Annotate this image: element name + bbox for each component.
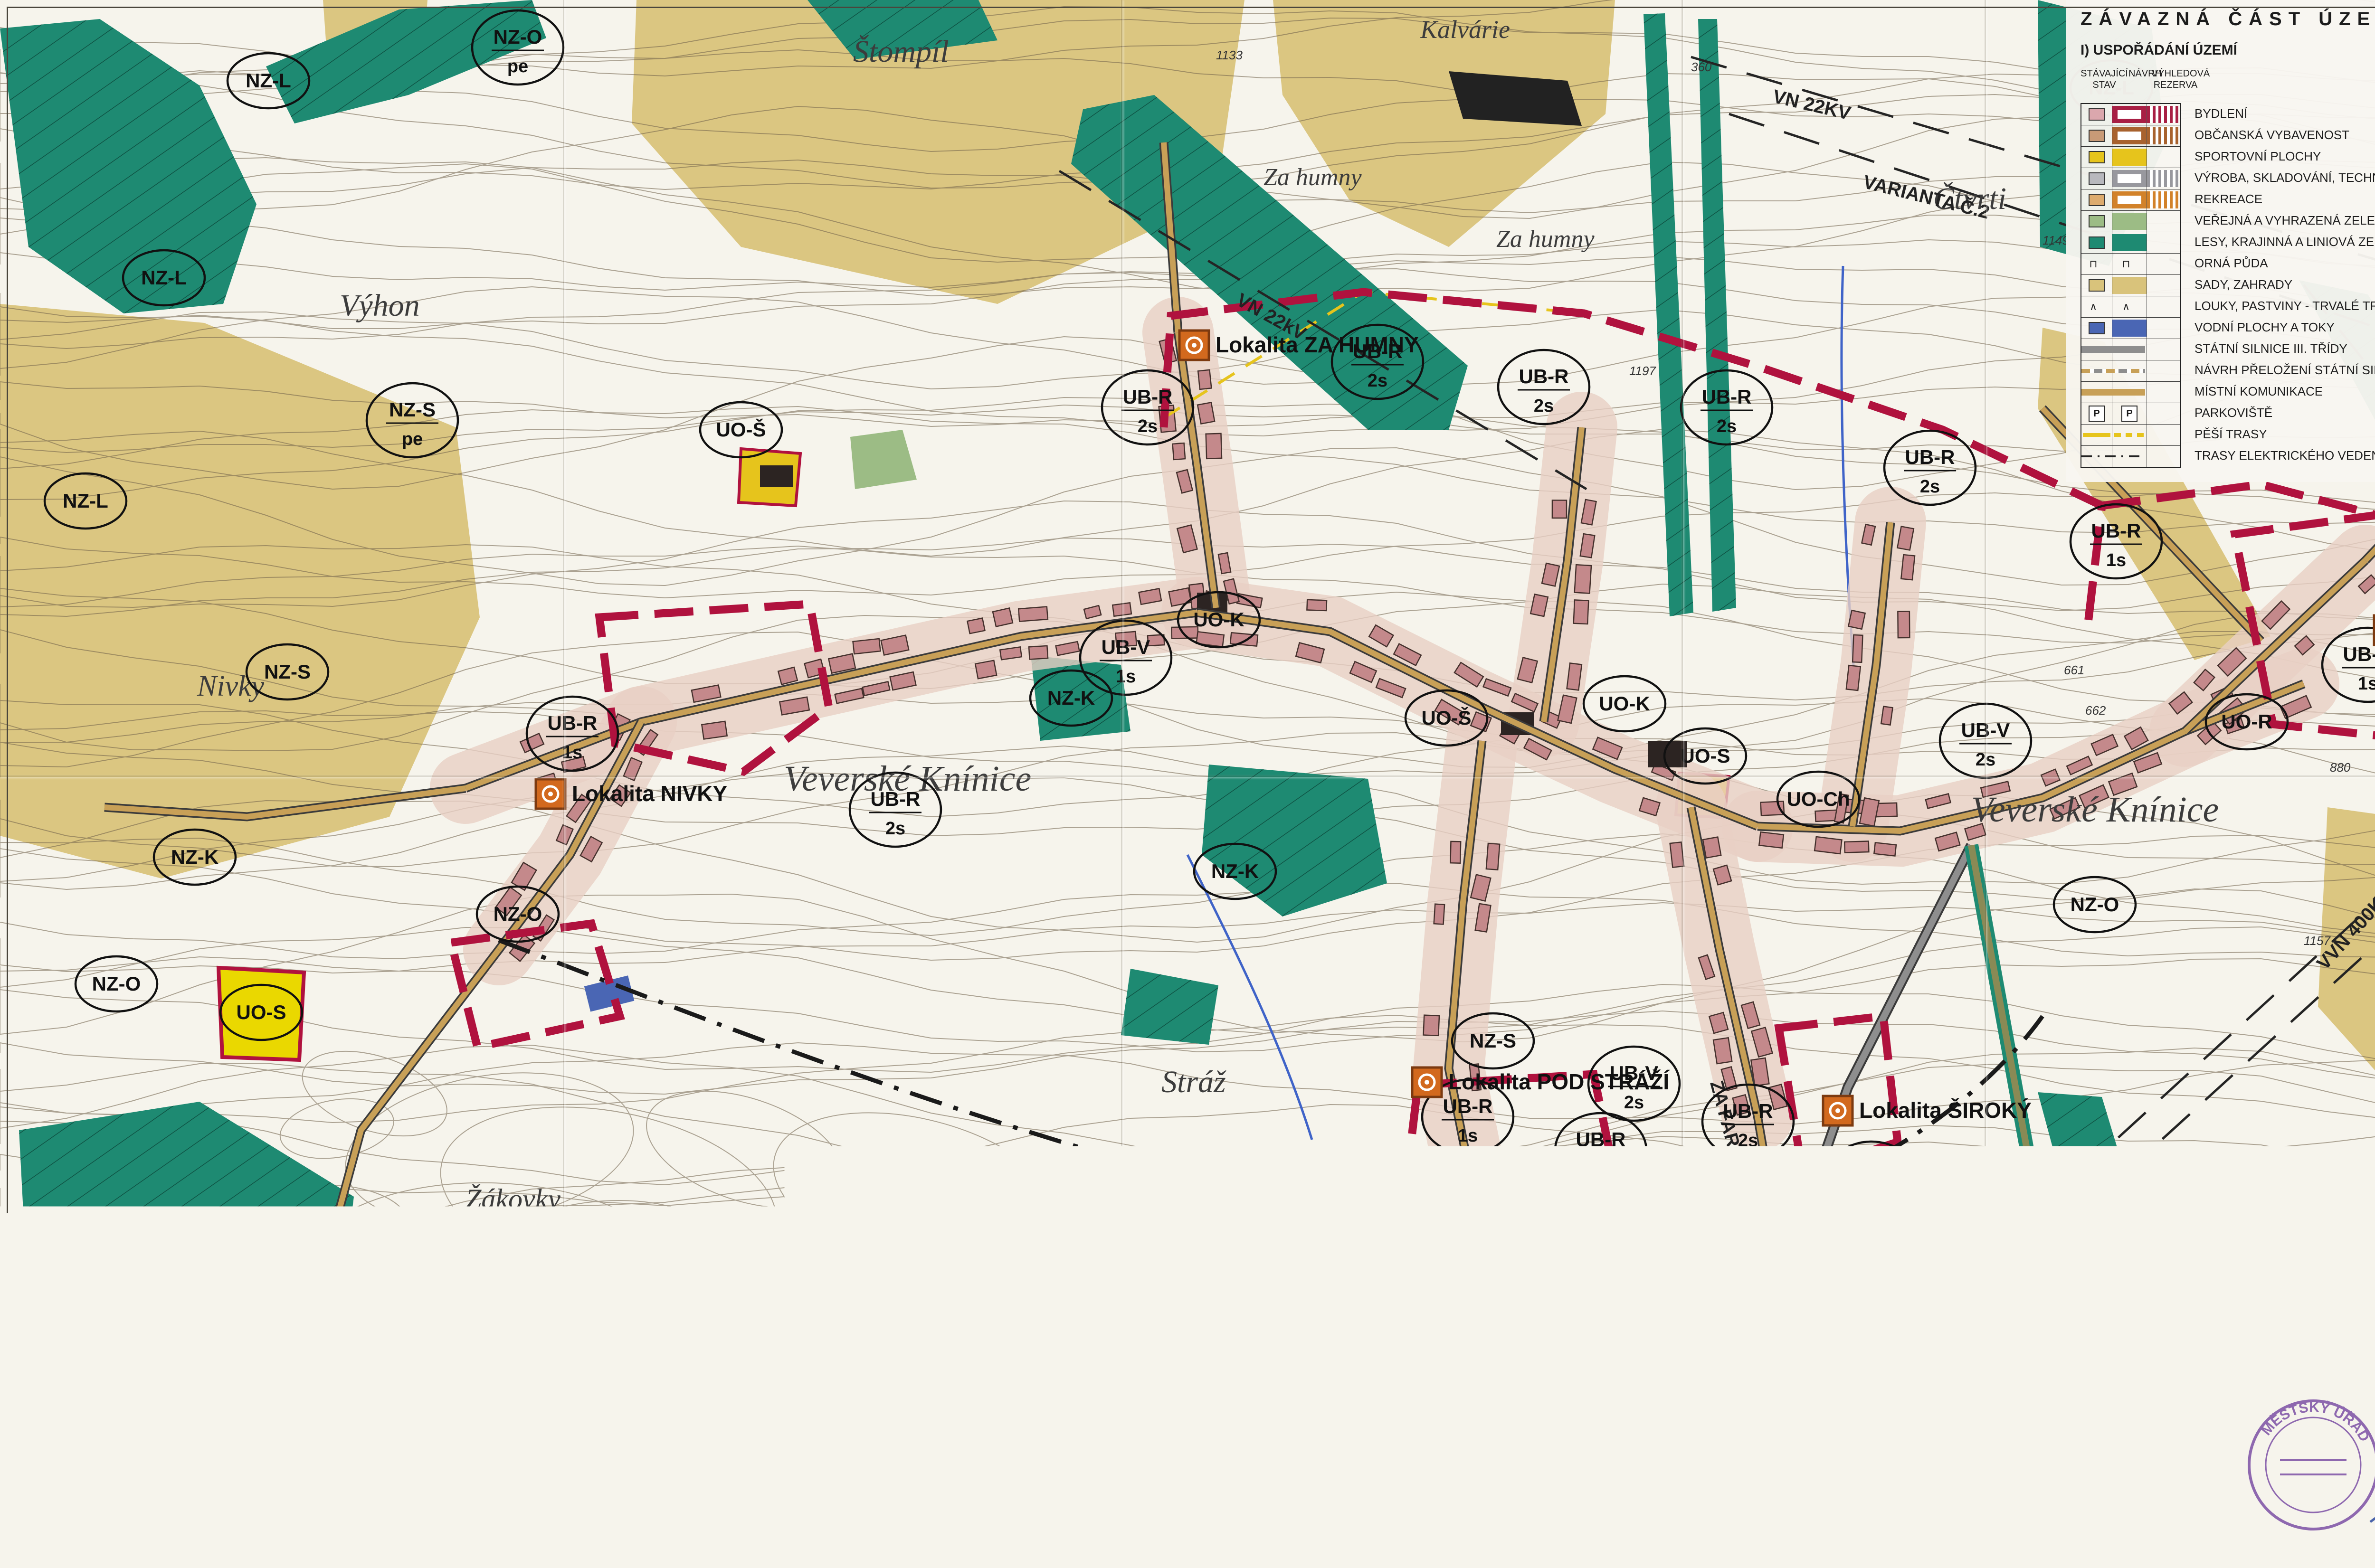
building <box>1000 647 1022 660</box>
building <box>1901 555 1915 580</box>
parcel-number: 661 <box>2064 663 2084 677</box>
svg-text:pe: pe <box>402 429 423 449</box>
svg-text:NZ-O: NZ-O <box>494 903 542 925</box>
place-label: Veverské Knínice <box>1971 790 2219 830</box>
svg-text:UB-R: UB-R <box>2343 643 2375 665</box>
legend-row-label: STÁTNÍ SILNICE III. TŘÍDY <box>2194 338 2375 359</box>
svg-text:UB-R: UB-R <box>1702 386 1752 408</box>
svg-text:UO-R: UO-R <box>2221 710 2272 733</box>
legend-row-swatch <box>2081 104 2180 125</box>
svg-text:2s: 2s <box>1624 1093 1644 1113</box>
legend-row-label: VODNÍ PLOCHY A TOKY <box>2194 317 2375 338</box>
parcel-number: 1133 <box>1216 48 1243 62</box>
svg-text:UO-K: UO-K <box>1599 692 1650 715</box>
building <box>1881 707 1892 725</box>
svg-text:1s: 1s <box>1458 1126 1478 1146</box>
place-label: Žákovky <box>465 1183 560 1215</box>
svg-text:2s: 2s <box>1920 477 1940 497</box>
public-building <box>760 465 793 487</box>
building <box>1173 443 1186 460</box>
svg-text:UV-A: UV-A <box>1848 1157 1895 1179</box>
building <box>1703 837 1721 858</box>
legend-row-label: LOUKY, PASTVINY - TRVALÉ TRAVNÍ POROSTY <box>2194 295 2375 317</box>
building <box>1169 588 1191 606</box>
building <box>1846 665 1861 690</box>
legend-row-label: VEŘEJNÁ A VYHRAZENÁ ZELEŇ <box>2194 210 2375 231</box>
legend-row-label: VÝROBA, SKLADOVÁNÍ, TECHNICKÁ VYBAVENOST <box>2194 167 2375 189</box>
fold-line <box>0 775 2375 777</box>
building <box>1876 803 1897 817</box>
legend-row-label: PARKOVIŠTĚ <box>2194 402 2375 424</box>
legend-row-label: SPORTOVNÍ PLOCHY <box>2194 146 2375 167</box>
building <box>993 608 1013 627</box>
legend-title: ZÁVAZNÁ ČÁST ÚZEMNÍHO PLÁNU <box>2080 9 2375 30</box>
building <box>1713 1038 1732 1064</box>
building <box>853 639 881 654</box>
svg-text:1s: 1s <box>2358 674 2375 694</box>
legend-row-label: OBČANSKÁ VYBAVENOST <box>2194 124 2375 146</box>
svg-text:NZ-L: NZ-L <box>246 69 291 92</box>
parcel-number: 340 <box>1917 1188 1938 1202</box>
building <box>1575 565 1591 593</box>
building <box>1450 841 1461 863</box>
svg-text:2s: 2s <box>885 819 905 839</box>
svg-text:UB-R: UB-R <box>1723 1100 1773 1122</box>
lokalita-marker: Lokalita NIVKY <box>536 779 727 809</box>
building <box>1029 646 1048 660</box>
building <box>702 721 727 739</box>
svg-text:UO-K: UO-K <box>1193 608 1244 631</box>
legend-row-label: MÍSTNÍ KOMUNIKACE <box>2194 381 2375 402</box>
svg-text:NZ-O: NZ-O <box>997 1348 1046 1370</box>
place-label: Výhon <box>340 288 420 323</box>
lokalita-marker: Lokalita POD STRÁŽÍ <box>1412 1067 1670 1097</box>
legend-head-stav: STÁVAJÍCÍSTAV <box>2080 68 2128 91</box>
parcel-number: 390 <box>97 1344 118 1359</box>
place-label: Kalvárie <box>1420 15 1510 44</box>
parcel-number: 1197 <box>1629 364 1656 378</box>
svg-text:UB-R: UB-R <box>1443 1095 1493 1117</box>
svg-text:2s: 2s <box>1368 371 1387 391</box>
legend-row-swatch <box>2081 125 2180 147</box>
legend-row-swatch <box>2081 360 2180 382</box>
parcel-number: 880 <box>2330 760 2351 775</box>
svg-text:NZ-O: NZ-O <box>2187 1443 2236 1465</box>
legend-main: ZÁVAZNÁ ČÁST ÚZEMNÍHO PLÁNU I) USPOŘÁDÁN… <box>2066 0 2375 482</box>
green-area <box>1971 1486 2052 1568</box>
svg-text:NZ-L: NZ-L <box>63 490 108 512</box>
building <box>1018 607 1048 622</box>
svg-text:Lokalita ŠIROKÝ: Lokalita ŠIROKÝ <box>1859 1098 2032 1123</box>
svg-text:1s: 1s <box>1116 667 1136 687</box>
svg-text:UO-Š: UO-Š <box>1422 706 1472 729</box>
fold-line <box>1121 0 1122 1568</box>
place-label: Nivky <box>197 670 265 702</box>
svg-text:1s: 1s <box>562 743 582 763</box>
svg-text:UT-V: UT-V <box>1136 1188 1182 1210</box>
building <box>1424 1015 1439 1036</box>
svg-text:2s: 2s <box>1738 1131 1758 1151</box>
building <box>1206 434 1222 459</box>
parcel-number: 360 <box>1691 60 1712 74</box>
legend-row-swatch <box>2081 318 2180 339</box>
legend-row-swatch: ∧∧ <box>2081 296 2180 318</box>
legend-row-label: ORNÁ PŮDA <box>2194 253 2375 274</box>
svg-text:UB-R: UB-R <box>548 712 598 734</box>
parcel-number: 1149 <box>2042 233 2069 247</box>
legend-column-heads: STÁVAJÍCÍSTAVNÁVRHVÝHLEDOVÁREZERVA <box>2080 68 2375 103</box>
svg-text:NZ-K: NZ-K <box>1211 860 1259 882</box>
legend-subtitle: I) USPOŘÁDÁNÍ ÚZEMÍ <box>2080 42 2375 58</box>
legend-row-label: NÁVRH PŘELOŽENÍ STÁTNÍ SILNICE III.TŘ. <box>2194 359 2375 381</box>
building <box>1552 500 1567 518</box>
svg-text:NZ-O: NZ-O <box>92 973 141 995</box>
svg-text:pe: pe <box>189 1416 210 1436</box>
building <box>1898 612 1909 638</box>
svg-text:NZ-S: NZ-S <box>389 398 436 421</box>
svg-text:Lokalita NIVKY: Lokalita NIVKY <box>572 781 727 806</box>
building <box>1494 1205 1510 1228</box>
place-label: Za humny <box>1496 226 1595 253</box>
place-label: Široký <box>2254 1179 2333 1213</box>
building <box>1759 832 1784 848</box>
svg-text:1s: 1s <box>2106 550 2126 570</box>
fold-line <box>563 0 564 1568</box>
building <box>1848 610 1865 629</box>
place-label: Stráž <box>1161 1065 1226 1099</box>
svg-text:NZ-K: NZ-K <box>1047 687 1095 709</box>
legend-row-swatch <box>2081 425 2180 446</box>
legend-row-label: LESY, KRAJINNÁ A LINIOVÁ ZELEŇ <box>2194 231 2375 253</box>
legend-row-swatch <box>2081 382 2180 403</box>
svg-text:2s: 2s <box>1534 396 1554 416</box>
legend-row-swatch <box>2081 339 2180 360</box>
svg-text:UB-V: UB-V <box>1102 636 1150 658</box>
place-label: Za humny <box>1263 164 1362 191</box>
legend-row-swatch <box>2081 211 2180 232</box>
building <box>1844 841 1869 852</box>
building <box>1307 600 1327 611</box>
svg-text:Lokalita ZA HUMNY: Lokalita ZA HUMNY <box>1216 332 1419 357</box>
svg-text:NZ-O: NZ-O <box>494 26 542 48</box>
svg-text:2s: 2s <box>1138 416 1158 436</box>
svg-text:2s: 2s <box>1591 1159 1611 1179</box>
svg-text:UO-S: UO-S <box>237 1001 286 1023</box>
map-sheet: ŠtompílKalvárieZa humnyZa humnyČtvrtiVýh… <box>0 0 2375 1568</box>
svg-text:NZ-K: NZ-K <box>171 846 218 868</box>
svg-text:Lokalita POD STRÁŽÍ: Lokalita POD STRÁŽÍ <box>1448 1069 1670 1094</box>
lokalita-marker: Lokalita ZA HUMNY <box>1179 331 1419 360</box>
fold-line <box>1985 0 1986 1568</box>
svg-text:NZ-S: NZ-S <box>264 661 311 683</box>
place-label: Štompíl <box>853 34 949 69</box>
svg-text:NZ-O: NZ-O <box>434 1368 483 1390</box>
fold-line <box>1681 0 1683 1568</box>
parcel-number: 1157 <box>2304 934 2331 948</box>
svg-text:2s: 2s <box>1862 1188 1881 1208</box>
legend-row-swatch <box>2081 189 2180 211</box>
place-label: Lhoty <box>201 1207 274 1242</box>
building <box>1852 635 1862 662</box>
svg-text:NZ-O: NZ-O <box>175 1385 224 1407</box>
svg-text:s: s <box>1946 1529 1956 1549</box>
legend-row-label: PĚŠÍ TRASY <box>2194 424 2375 445</box>
building <box>1197 402 1215 424</box>
svg-text:NZ-L: NZ-L <box>141 266 187 289</box>
svg-text:UB-R: UB-R <box>2091 520 2141 542</box>
legend-row-label: TRASY ELEKTRICKÉHO VEDENÍ <box>2194 445 2375 466</box>
building <box>1574 600 1589 624</box>
building <box>1567 663 1582 690</box>
svg-text:UB-R: UB-R <box>1519 365 1569 387</box>
building <box>1486 843 1500 870</box>
svg-text:UB-R: UB-R <box>1576 1128 1626 1151</box>
svg-text:UB-R: UB-R <box>871 788 921 810</box>
legend-row-label: BYDLENÍ <box>2194 103 2375 124</box>
building <box>1814 837 1842 854</box>
legend-row-label: SADY, ZAHRADY <box>2194 274 2375 295</box>
place-label: Pod Stráž <box>1334 1266 1432 1293</box>
legend-row-swatch <box>2081 168 2180 189</box>
legend-row-swatch <box>2081 446 2180 467</box>
svg-text:UV-Z: UV-Z <box>1928 1498 1974 1520</box>
legend-row-swatch <box>2081 147 2180 168</box>
svg-text:NZ-L: NZ-L <box>96 1226 142 1248</box>
svg-text:UZ-H: UZ-H <box>1862 1366 1909 1388</box>
svg-text:UB-R: UB-R <box>1905 446 1955 468</box>
parcel-number: 662 <box>2085 703 2106 718</box>
building <box>975 661 997 679</box>
svg-text:pe: pe <box>507 57 528 76</box>
building <box>1198 370 1211 389</box>
svg-text:UO-S: UO-S <box>1681 745 1730 767</box>
legend-row-labels: BYDLENÍOBČANSKÁ VYBAVENOSTSPORTOVNÍ PLOC… <box>2194 103 2375 466</box>
legend-row-swatch: ⊓⊓ <box>2081 254 2180 275</box>
svg-text:UO-Š: UO-Š <box>716 418 766 441</box>
legend-swatch-table: ⊓⊓∧∧PP <box>2080 103 2181 468</box>
legend-row-swatch <box>2081 232 2180 254</box>
svg-text:UB-R: UB-R <box>1123 386 1173 408</box>
svg-text:NZ-S: NZ-S <box>1470 1030 1516 1052</box>
building <box>1434 904 1444 925</box>
svg-text:2s: 2s <box>1717 416 1737 436</box>
legend-row-label: REKREACE <box>2194 189 2375 210</box>
map-canvas: ŠtompílKalvárieZa humnyZa humnyČtvrtiVýh… <box>0 0 2375 1568</box>
svg-text:NZ-O: NZ-O <box>2071 893 2119 916</box>
building <box>967 618 985 634</box>
legend-head-rezerva: VÝHLEDOVÁREZERVA <box>2152 68 2199 91</box>
legend-row-swatch <box>2081 275 2180 296</box>
legend-row-swatch: PP <box>2081 403 2180 425</box>
building <box>1874 842 1896 856</box>
svg-text:UO-Ch: UO-Ch <box>1787 788 1850 810</box>
